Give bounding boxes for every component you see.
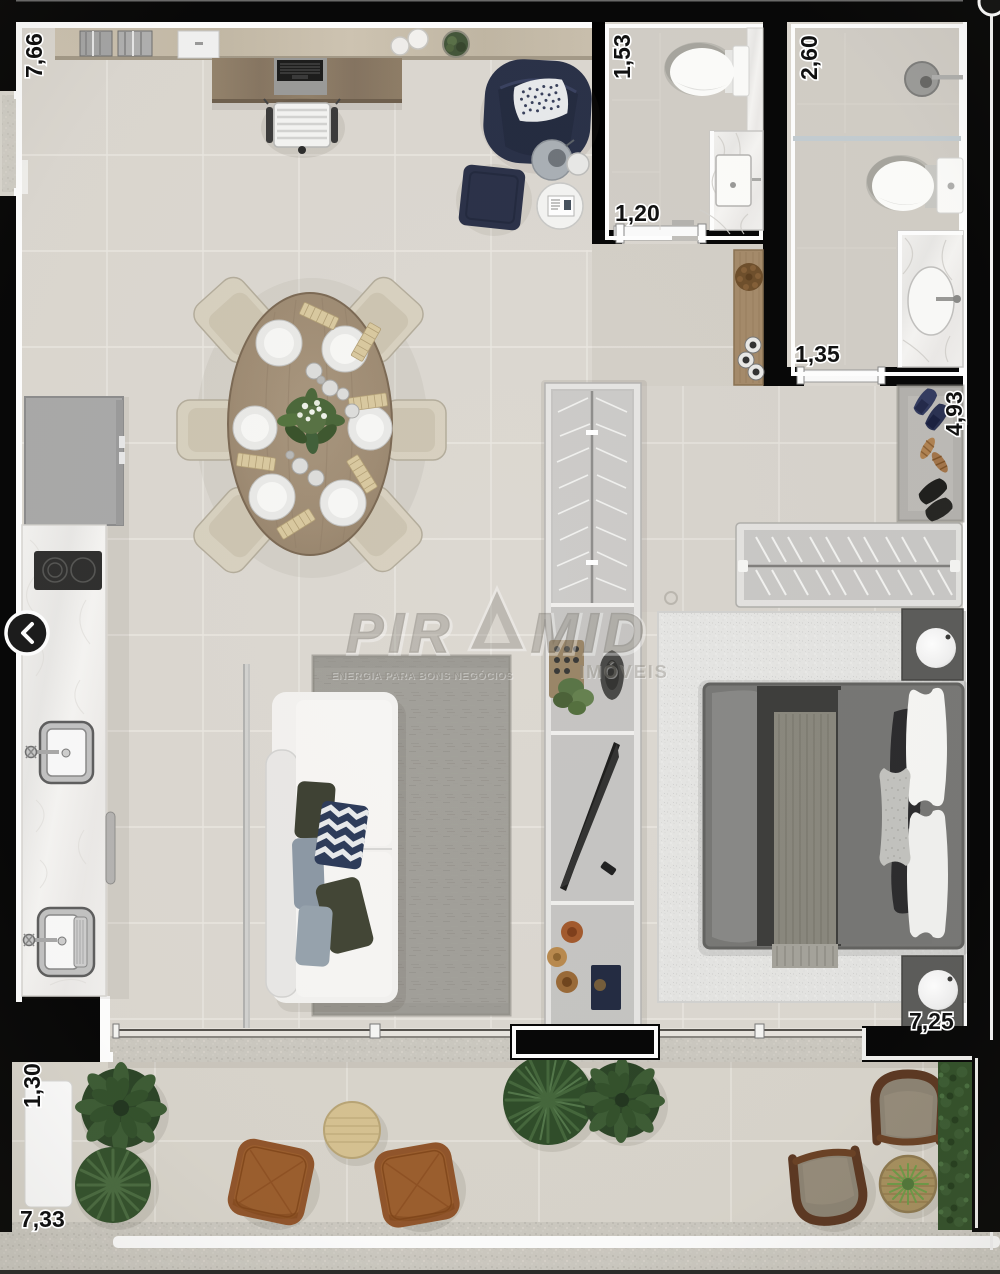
svg-text:2,60: 2,60 — [796, 35, 822, 80]
svg-text:1,53: 1,53 — [609, 34, 635, 79]
svg-text:4,93: 4,93 — [941, 391, 967, 436]
svg-text:7,33: 7,33 — [20, 1206, 65, 1232]
svg-text:1,30: 1,30 — [19, 1063, 45, 1108]
svg-text:1,35: 1,35 — [795, 341, 840, 367]
svg-text:1,20: 1,20 — [615, 200, 660, 226]
svg-text:7,25: 7,25 — [909, 1008, 954, 1034]
svg-text:7,66: 7,66 — [21, 33, 47, 78]
